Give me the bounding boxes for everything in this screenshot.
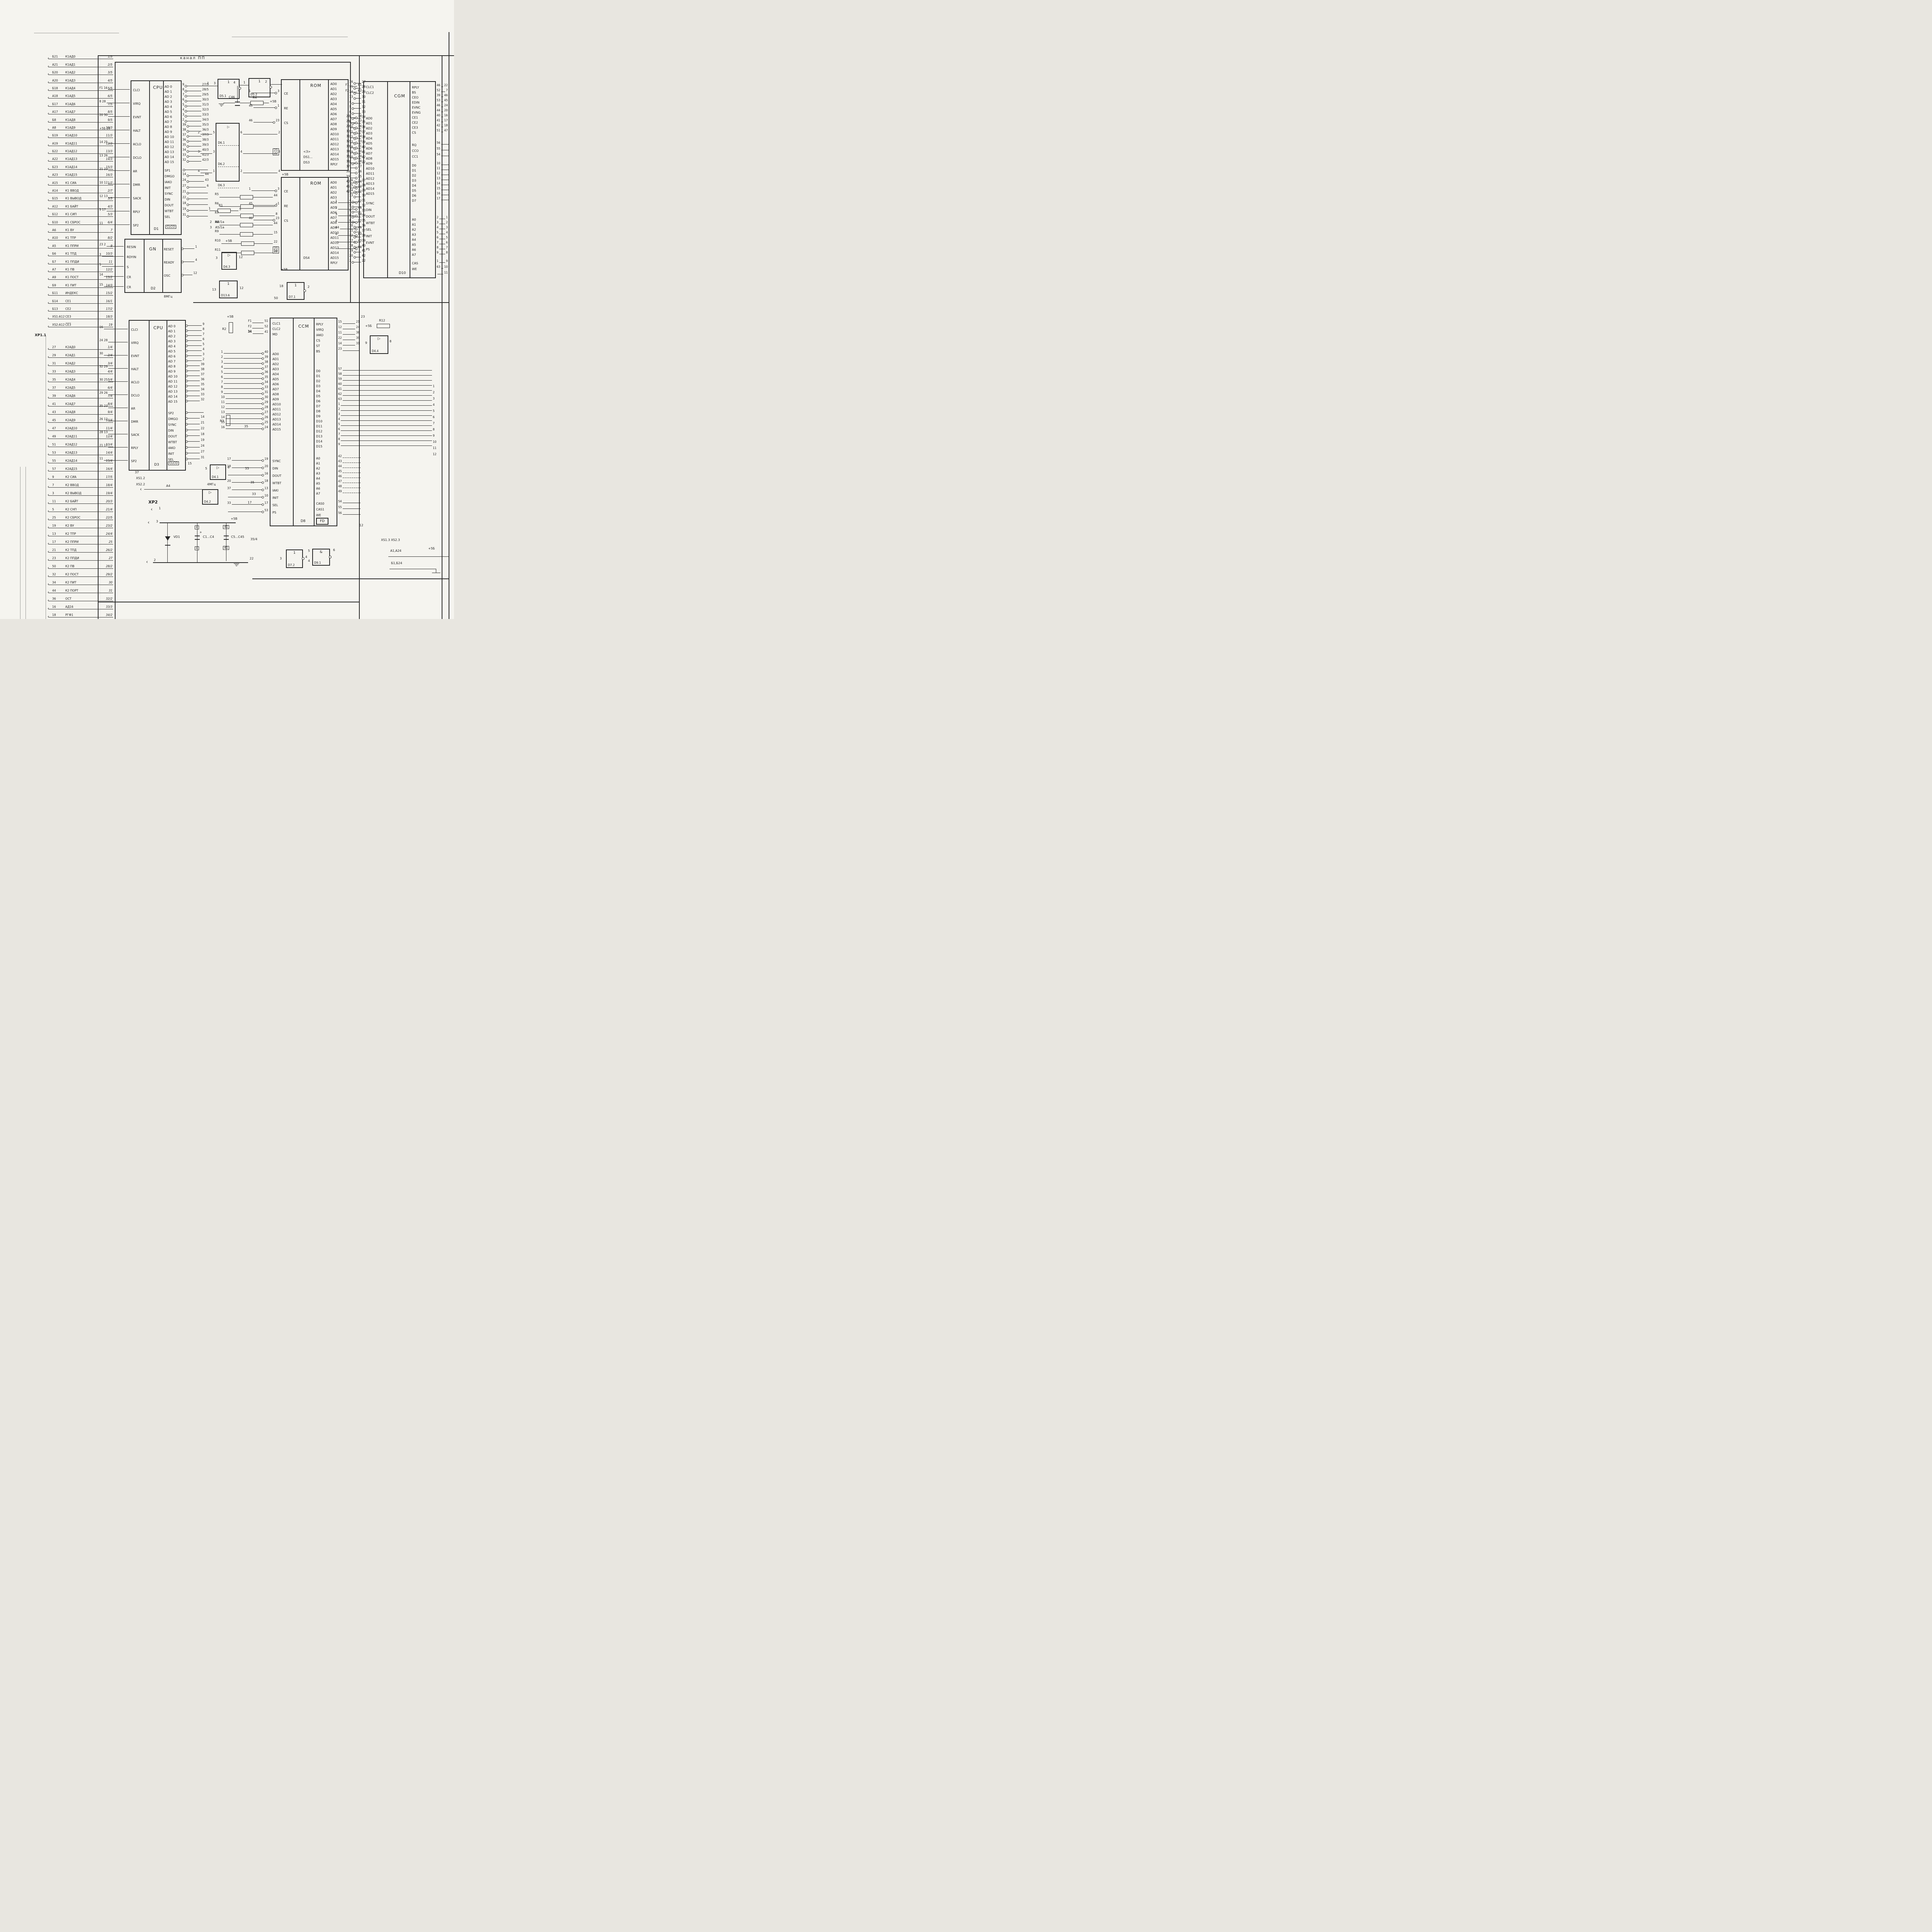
net-label: 1 — [207, 82, 209, 85]
pin-name: EVNT — [131, 349, 139, 362]
net-line — [237, 86, 238, 103]
pin-name: SACK — [133, 192, 141, 205]
pin-name: A6 — [412, 247, 416, 252]
wire — [221, 243, 273, 244]
pin-name: AD8 — [366, 156, 374, 161]
pin-name: D4 — [316, 389, 322, 394]
bus-number: 7 — [432, 422, 440, 428]
gate-ref: D7.2 — [288, 563, 295, 567]
pin-id: А7 — [52, 268, 65, 271]
gate-ref: D7.1 — [289, 295, 296, 299]
net-label: 4 — [308, 560, 310, 563]
nand-d91: & D9.1 — [312, 549, 330, 566]
net-label: 22 — [273, 240, 278, 243]
resistor-label: R9 — [215, 230, 219, 233]
signal-name: ИНДЕКС — [65, 291, 102, 295]
cgm-right3-wires: 1011121314151617 — [436, 162, 449, 202]
gate-symbol: & — [313, 550, 329, 554]
inverter-d72: 1 D7.2 — [286, 549, 303, 568]
ccm-clc-pins: CLC1CLC2MD — [272, 321, 281, 337]
bus-number: 9 — [432, 434, 440, 440]
pin-name: SACK — [131, 428, 139, 441]
net-label: 1 — [159, 507, 161, 510]
pin-name: WTBT — [168, 439, 178, 445]
arrow-left-icon: ‹ — [146, 560, 148, 564]
gate-symbol: ▷ — [222, 253, 236, 257]
pin-id: А18 — [52, 94, 65, 98]
signal-name: К2 ВЫВОД — [65, 492, 102, 495]
pin-id: Б8 — [52, 118, 65, 122]
pin-id: А9 — [52, 276, 65, 279]
pin-name: EVNC — [412, 105, 421, 110]
buffer-cell: D6.2 — [218, 146, 239, 167]
signal-name: К1АД10 — [65, 134, 102, 137]
k2-row: ‹ 32 К2 ПОСТ 29/2 — [48, 569, 113, 577]
signal-name: К2АД6 — [65, 394, 102, 398]
cgm-right2-pins: RQCCOCC1 — [412, 142, 418, 160]
pin-name: D15 — [316, 444, 322, 449]
gate-ref: D6.1 — [218, 141, 225, 145]
pin-name: CC1 — [412, 154, 418, 160]
pin-id: 53 — [52, 451, 65, 454]
gate-ref: D4.4 — [372, 349, 379, 353]
wire: 59 — [337, 378, 432, 383]
signal-name: К1 ППРИ — [65, 244, 102, 248]
wire: 734 — [220, 381, 269, 386]
signal-name: К2 ТПД — [65, 548, 102, 552]
pin-name: SEL — [165, 214, 175, 220]
pin-id: 50 — [52, 565, 65, 568]
signal-name: К1АД9 — [65, 126, 102, 129]
pin-name: MD — [272, 332, 281, 337]
resistor-label: R11 — [215, 248, 221, 252]
pin-name: AD5 — [330, 107, 339, 112]
wire: 4623 — [248, 213, 280, 227]
pin-name: DOUT — [165, 202, 175, 208]
frame-line — [98, 55, 454, 56]
pin-id: Б10 — [52, 221, 65, 224]
bus-number: 3 — [432, 397, 440, 403]
arrow-left-icon: ‹ — [48, 324, 49, 329]
pin-id: 13 — [52, 532, 65, 536]
wire: 16 — [226, 471, 269, 479]
wire: 5 — [99, 261, 124, 271]
rom2-refs: DS4 — [303, 255, 310, 260]
net-line — [201, 86, 218, 86]
pin-name: RE — [284, 199, 288, 213]
cpu2-left-wires: 1624 283032 2930 2529 2635 2326 1228 132… — [99, 322, 128, 467]
pin-id: Б18 — [52, 87, 65, 90]
pin-name: A7 — [316, 491, 320, 496]
signal-name: К2АД0 — [65, 345, 102, 349]
sheet-ref: 29/2 — [102, 573, 112, 576]
vd1-label: VD1 — [173, 536, 180, 539]
pin-name: ST — [316, 343, 324, 349]
resistor-label: R5 — [215, 192, 219, 196]
pin-name: HALT — [133, 124, 141, 138]
wire: 16 — [99, 322, 128, 335]
signal-name: К1АД0 — [65, 55, 102, 58]
wire: 23 2 — [99, 241, 124, 251]
net-label: 33 — [252, 493, 256, 496]
wire: 29 26 — [99, 388, 128, 401]
sheet-ref: 31 — [102, 589, 112, 592]
sheet-ref: 28/2 — [102, 565, 112, 568]
wire: 21 17 — [99, 440, 128, 454]
rom2-left-wires: 134514623 — [248, 183, 280, 227]
signal-name: К2АД13 — [65, 451, 102, 454]
signal-name: К1 ПОСТ — [65, 276, 102, 279]
pin-name: AD3 — [272, 367, 281, 372]
cgm-clc-pins: CLC1CLC2 — [366, 84, 374, 96]
page-title: канал ПП — [180, 56, 205, 60]
c46-label: C46 — [229, 96, 235, 99]
signal-name: К2 ПВ — [65, 565, 102, 568]
k2-row: ‹ 36 ОСТ 32/2 — [48, 593, 113, 601]
freq-label: 4МГц — [207, 483, 216, 486]
k1-row: ‹ Б14 СЕ1 16/1 — [48, 296, 113, 303]
scan-artifact-line — [34, 33, 119, 33]
power-label: +5В — [225, 240, 232, 243]
power-label: +5Б — [365, 325, 372, 328]
rom1-right-pins: AD0AD1AD2AD3AD4AD5AD6AD7AD8AD9AD10AD11AD… — [330, 82, 339, 167]
ccm-right1-wires: 1521122411382239143123 — [337, 321, 361, 353]
pin-name: WTBT — [366, 220, 375, 226]
wire: 3 — [337, 413, 432, 418]
pin-name: PS — [366, 246, 375, 253]
net-label: 37 — [135, 471, 139, 474]
net-label: 41 — [223, 546, 229, 550]
sheet-ref: 30 — [102, 581, 112, 584]
k2-row: ‹ 17 К2 ППРИ 25 — [48, 536, 113, 544]
power-label: +5В — [227, 315, 233, 318]
signal-name: К2АД8 — [65, 410, 102, 414]
cgm-right4-pins: A0A1A2A3A4A5A6A7 — [412, 217, 416, 257]
pin-name: D0 — [316, 369, 322, 374]
signal-name: К1 ТПР — [65, 236, 102, 240]
pin-name: IAKI — [272, 487, 281, 494]
net-label: 2 — [154, 559, 156, 562]
resistor-icon — [229, 322, 233, 333]
wire: 1 — [337, 403, 432, 408]
pin-name: DIN — [272, 465, 281, 472]
pin-name: RE — [284, 101, 288, 116]
signal-name: К1АД3 — [65, 79, 102, 82]
pin-id: А10 — [52, 236, 65, 240]
wire: 55 — [337, 506, 361, 512]
pin-id: 21 — [52, 548, 65, 552]
rom2-title: ROM — [310, 181, 321, 186]
pin-name: A7 — [412, 252, 416, 257]
rom1-block: ROM CERECS <3>DS1...DS3 AD0AD1AD2AD3AD4A… — [281, 79, 349, 171]
pin-id: XS1:А12 — [52, 315, 65, 318]
bus-number: 5 — [432, 410, 440, 416]
signal-name: К2 ВУ — [65, 524, 102, 527]
wire: 437 — [220, 366, 269, 371]
pin-name: VIRQ — [133, 97, 141, 111]
wire: 57 — [337, 368, 432, 373]
pin-name: A2 — [316, 466, 320, 471]
k2-row: ‹ 34 К2 ПИТ 30 — [48, 577, 113, 585]
pin-name: CLC2 — [366, 90, 374, 96]
pin-name: HALT — [131, 362, 139, 376]
pin-name: RESET — [164, 243, 174, 256]
signal-name: К1АД5 — [65, 94, 102, 98]
bus-number: 1 — [432, 385, 440, 391]
pin-name: AD11 — [330, 137, 339, 142]
cgm-ad-wires: 2738283729363035313432333331343035293628… — [345, 115, 362, 196]
cpu2-ad-wires: 987654323938373635343332 — [186, 323, 205, 403]
k1-row: ‹ А21 К1АД1 2/5 — [48, 59, 113, 67]
sheet-ref: 16/4 — [102, 467, 112, 471]
k2-row: ‹ 3 К2 ВЫВОД 19/4 — [48, 488, 113, 496]
pin-name: RPLY — [133, 205, 141, 219]
ccm-fd-box: FD — [316, 518, 328, 525]
wire: 13 26 — [99, 150, 130, 164]
gate-symbol: 1 — [287, 284, 304, 287]
chip-ref: <3> — [303, 149, 313, 154]
pin-name: WE — [412, 266, 418, 272]
net-line — [270, 84, 282, 85]
pin-id: А6 — [52, 228, 65, 232]
net-label: 12 — [239, 256, 243, 259]
pin-name: D0 — [412, 163, 416, 168]
cgm-right1-pins: RPLYBSCEOEDINEVNCEVNGCE1CE2CE3CS — [412, 85, 421, 135]
pin-name: AD12 — [366, 176, 374, 181]
wire: F262 — [345, 89, 362, 95]
pin-name: CLC2 — [272, 326, 281, 332]
wire: 24 — [186, 444, 205, 450]
gate-ref: D6.3 — [218, 184, 225, 187]
pin-name: VIRQ — [316, 327, 324, 332]
pin-name: CAS — [412, 260, 418, 266]
pin-id: 55 — [52, 459, 65, 463]
gn-right-pins: RESETREADYOSC — [164, 243, 174, 282]
cpu1-clco: CLCO — [165, 225, 176, 229]
gn-ref: D2 — [151, 287, 156, 291]
wire: 14 — [186, 415, 205, 421]
net-label: 15 — [188, 462, 192, 465]
cgm-clc-wires: F161F262 — [345, 83, 362, 95]
pin-name: AD 1 — [165, 89, 174, 94]
clock-gen-block: GN D2 RESINRDYINSCRCR RESETREADYOSC — [124, 239, 182, 293]
cpu2-clco: CLCO — [168, 461, 179, 465]
resistor-icon — [241, 251, 254, 255]
signal-name: РГФ1 — [65, 613, 102, 617]
wire: 6310 — [436, 265, 449, 271]
wire: 5 — [337, 423, 432, 428]
frame-line — [46, 335, 46, 619]
net-label: 3 — [156, 520, 158, 523]
gate-symbol: 1 — [287, 551, 302, 555]
frame-line — [98, 602, 359, 602]
wire: 10 — [226, 493, 269, 501]
net-label: 22 — [250, 557, 253, 560]
pin-name: EVNT — [133, 111, 141, 124]
k2-row: ‹ 21 К2 ТПД 26/2 — [48, 544, 113, 553]
signal-name: К2АД1 — [65, 354, 102, 357]
pin-id: А22 — [52, 157, 65, 161]
pin-name: AD14 — [366, 186, 374, 191]
wire: 31 — [182, 213, 209, 219]
pin-id: 19 — [52, 524, 65, 527]
pin-name: AD2 — [366, 126, 374, 131]
buffer-cell: D6.3 — [218, 167, 239, 188]
pin-name: DMR — [131, 415, 139, 428]
pin-name: AD13 — [272, 417, 281, 422]
buffer-d41: ▷ D4.1 — [210, 464, 226, 480]
pin-name: AD6 — [330, 112, 339, 117]
wire: 21 — [186, 421, 205, 427]
wire: 7 — [337, 433, 432, 438]
pin-name: CAS1 — [316, 507, 324, 512]
pin-name: AD0 — [272, 352, 281, 357]
pin-id: 25 — [52, 516, 65, 519]
signal-name: СЕ1 — [65, 299, 102, 303]
ccm-right4-wires: 545556 — [337, 500, 361, 517]
arrow-left-icon: ‹ — [151, 507, 153, 512]
pin-name: AD15 — [272, 427, 281, 432]
pin-name: AD 11 — [168, 379, 177, 384]
signal-name: К1 СБРОС — [65, 221, 102, 224]
pin-name: CLC1 — [272, 321, 281, 326]
frame-line — [26, 467, 26, 619]
pin-name: DOUT — [168, 434, 178, 439]
signal-name: К1АД7 — [65, 110, 102, 114]
pin-name: IAKO — [168, 445, 178, 451]
cpu1-ad-pins: AD 0AD 1AD 2AD 3AD 4AD 5AD 6AD 7AD 8AD 9… — [165, 84, 174, 165]
pin-name: INIT — [165, 185, 175, 191]
chip-ref: DS1... — [303, 154, 313, 160]
signal-name: К1АД14 — [65, 165, 102, 169]
pin-name: AD 7 — [165, 119, 174, 124]
signal-name: К2 ПОСТ — [65, 573, 102, 576]
resistor-icon — [241, 241, 254, 246]
wire: 536 — [220, 371, 269, 376]
wire: 4222 — [345, 190, 362, 196]
pin-id: Б13 — [52, 307, 65, 311]
sheet-ref: 22/5 — [102, 516, 112, 519]
pin-name: RESIN — [127, 242, 136, 252]
pin-name: BS — [412, 90, 421, 95]
divider — [299, 80, 300, 170]
pin-name: CLCI — [133, 83, 141, 97]
sheet-ref: 1/5 — [102, 55, 112, 58]
pin-name: DCLO — [131, 389, 139, 402]
pin-name: SP1 — [165, 168, 175, 173]
net-label: 9 — [365, 342, 367, 345]
pin-name: CE3 — [412, 125, 421, 130]
pin-name: A2 — [412, 227, 416, 232]
pin-name: INIT — [272, 494, 281, 502]
pin-name: AD 13 — [165, 150, 174, 155]
signal-name: К1АД13 — [65, 157, 102, 161]
wire: 11 — [436, 271, 449, 277]
pin-name: AD 9 — [168, 369, 177, 374]
pin-name: INIT — [366, 233, 375, 240]
wire: 53 — [226, 508, 269, 515]
signal-name: К2 ПИТ — [65, 581, 102, 584]
pin-name: WE — [316, 512, 324, 518]
wire: 8 — [337, 438, 432, 443]
buffer-d42: ▷ D4.2 — [202, 489, 218, 505]
wire: 1129 — [220, 401, 269, 406]
xs22-label: XS2.2 — [136, 483, 145, 486]
divider — [328, 178, 329, 270]
pin-name: SYNC — [366, 200, 375, 207]
pin-name: AD 6 — [165, 114, 174, 119]
pin-name: D8 — [316, 409, 322, 414]
signal-name: К1 ППДИ — [65, 260, 102, 264]
wire: 12 13 — [99, 191, 130, 204]
signal-name: К1 ТПД — [65, 252, 102, 255]
pin-name: AD7 — [366, 151, 374, 156]
c5c45-label: C5...C45 — [231, 536, 244, 539]
pin-id: 36 — [52, 597, 65, 600]
cgm-right4-wires: 2132435465768798 — [436, 216, 449, 257]
pin-name: CS — [316, 338, 324, 343]
pin-name: AD10 — [272, 402, 281, 407]
net-label: 35/4 — [250, 538, 257, 541]
xp1-header: ХР1.1 — [35, 334, 46, 337]
wire: 60 — [337, 383, 432, 388]
pin-id: 27 — [52, 345, 65, 349]
pin-name: RPLY — [412, 85, 421, 90]
pin-name: SYNC — [165, 191, 175, 197]
net-label: 12 — [240, 287, 243, 290]
pin-id: Б23 — [52, 165, 65, 169]
pin-id: 47 — [52, 427, 65, 430]
signal-name: СЕ3 — [65, 315, 102, 318]
pin-name: AD10 — [366, 166, 374, 171]
pin-name: AD1 — [330, 87, 339, 92]
frame-line — [449, 32, 449, 619]
wire: 20 30 — [99, 110, 130, 123]
k1-row: ‹ XS1:А12 СЕ3 18/3 — [48, 311, 113, 319]
arrow-left-icon: ‹ — [48, 614, 49, 619]
pin-name: D6 — [316, 399, 322, 404]
d6-left-wires: 253341 — [197, 124, 216, 182]
gn-left-pins: RESINRDYINSCRCR — [127, 242, 136, 292]
wire: 338 — [220, 361, 269, 366]
signal-name: К1 ВУ — [65, 228, 102, 232]
divider — [149, 81, 150, 234]
k2-row: ‹ 50 К2 ПВ 28/2 — [48, 561, 113, 569]
wire: 635 — [220, 376, 269, 381]
pin-id: 49 — [52, 435, 65, 438]
divider — [162, 240, 163, 292]
wire: 11 — [99, 454, 128, 467]
sheet-ref: 18/4 — [102, 483, 112, 487]
net-line — [144, 489, 212, 490]
pin-name: AD8 — [330, 122, 339, 127]
pin-id: 37 — [52, 386, 65, 389]
wire: 451 — [248, 100, 280, 115]
net-label: 4 — [195, 526, 199, 529]
pin-name: AD9 — [366, 161, 374, 166]
wire: 43 — [335, 239, 362, 245]
pin-name: RPLY — [330, 162, 339, 167]
wire: 30 25 — [99, 375, 128, 388]
net-label: 4 — [233, 81, 235, 84]
bus-number: 10 — [432, 440, 440, 447]
frame-line — [442, 55, 442, 619]
cgm-block: CGM D10 CLC1CLC2 AD0AD1AD2AD3AD4AD5AD6AD… — [363, 81, 436, 278]
pin-name: AD1 — [366, 121, 374, 126]
arrow-left-icon: ‹ — [148, 520, 150, 525]
divider — [293, 318, 294, 526]
pin-name: RPLY — [131, 441, 139, 454]
